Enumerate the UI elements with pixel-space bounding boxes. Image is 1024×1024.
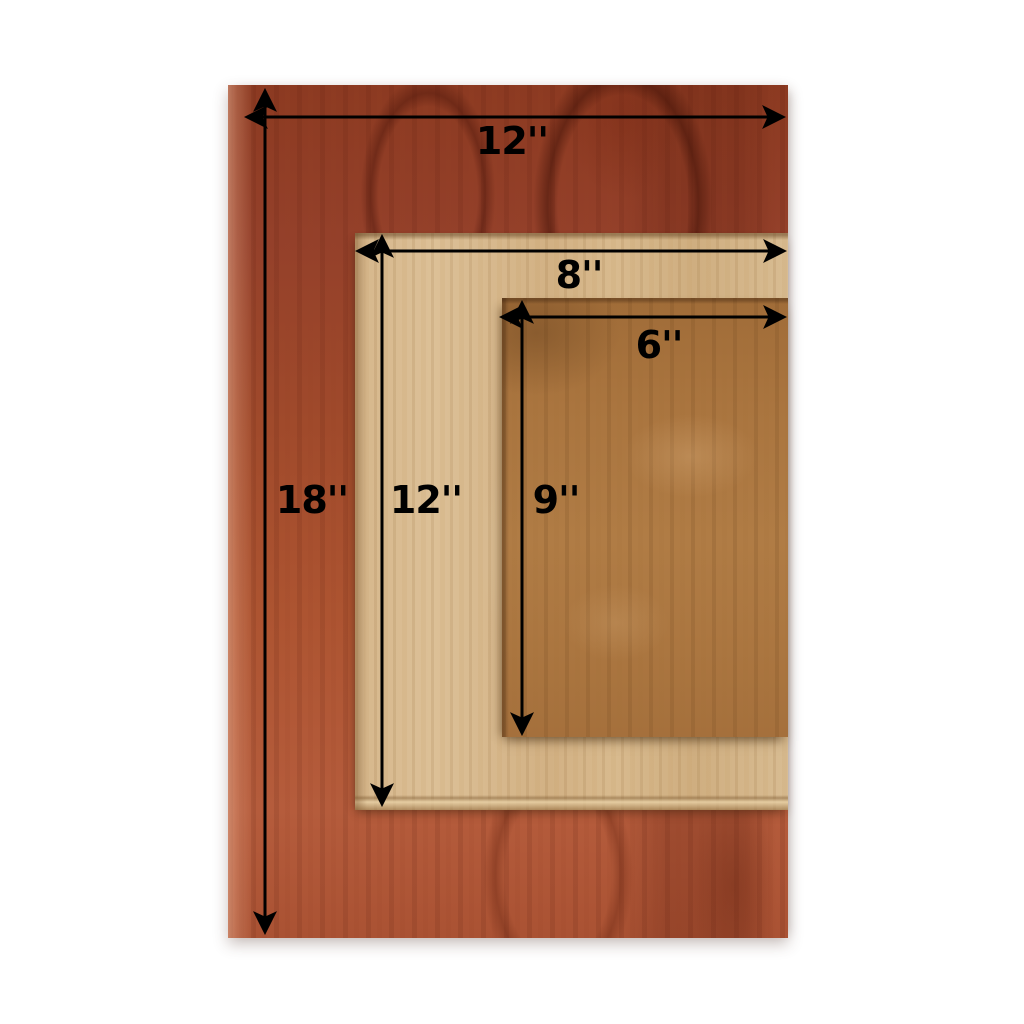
small-board-width-label: 6'' <box>636 326 683 364</box>
small-board-height-label: 9'' <box>533 481 580 519</box>
medium-board-height-label: 12'' <box>390 481 462 519</box>
large-board-width-label: 12'' <box>476 122 548 160</box>
board-size-diagram: 12'' 18'' 8'' 12'' 6'' 9'' <box>0 0 1024 1024</box>
medium-board-width-label: 8'' <box>556 256 603 294</box>
large-board-height-label: 18'' <box>276 481 348 519</box>
